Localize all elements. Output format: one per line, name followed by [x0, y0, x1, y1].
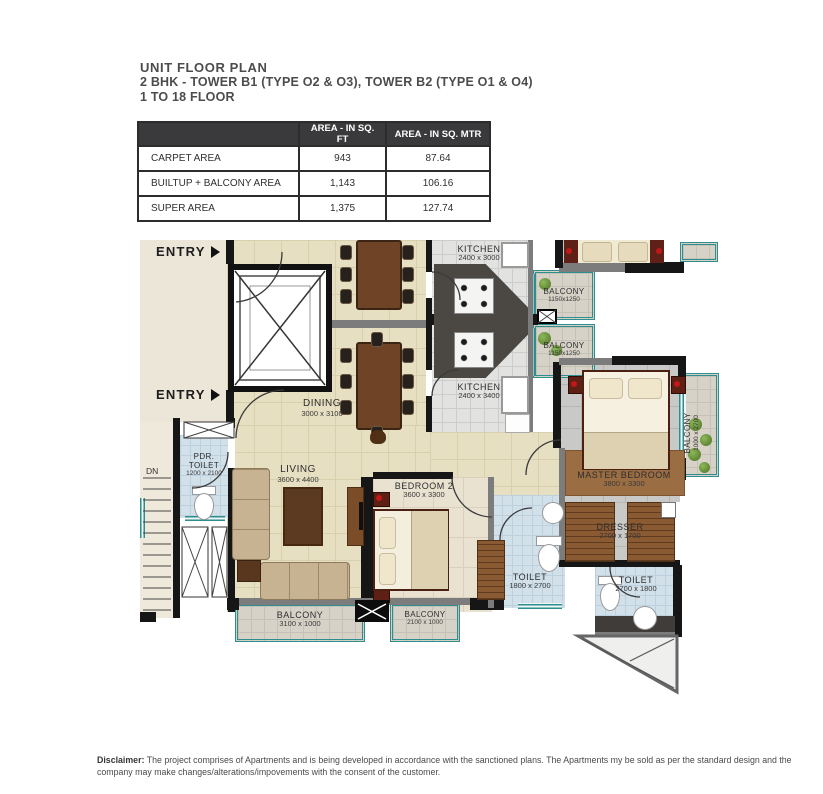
lift-shaft — [228, 264, 332, 392]
dining-table-neighbor — [340, 240, 414, 310]
row-sqft: 1,143 — [299, 171, 386, 196]
room-label-kitchen-top: KITCHEN 2400 x 3000 — [436, 244, 522, 263]
duvet — [411, 511, 448, 589]
decor-icon — [566, 248, 572, 254]
window-stairs — [140, 498, 145, 538]
disclaimer-text: The project comprises of Apartments and … — [97, 755, 792, 777]
room-label-balcony-br: BALCONY 2100 x 1000 — [392, 610, 458, 627]
chair — [402, 245, 414, 260]
wall-corner — [140, 612, 156, 622]
disclaimer: Disclaimer: The project comprises of Apa… — [97, 755, 797, 778]
room-label-balcony-right: BALCONY 1000 x 2700 — [683, 390, 713, 476]
stove-icon — [454, 278, 494, 314]
pillow — [628, 378, 662, 399]
wardrobe — [477, 540, 505, 600]
wall — [555, 240, 563, 268]
sink-icon — [542, 502, 564, 524]
row-label: BUILTUP + BALCONY AREA — [138, 171, 299, 196]
door-gap — [426, 272, 432, 298]
kitchen-appliance — [505, 414, 530, 433]
room-label-living: LIVING 3600 x 4400 — [262, 464, 334, 484]
sofa-section — [260, 562, 350, 600]
entry-label-top: ENTRY — [156, 244, 220, 259]
tv-icon — [359, 502, 363, 530]
chair — [402, 267, 414, 282]
header-sqmtr: AREA - IN SQ. MTR — [386, 122, 490, 146]
row-label: CARPET AREA — [138, 146, 299, 171]
chair — [340, 245, 352, 260]
chair — [371, 332, 383, 347]
duvet — [584, 432, 668, 469]
table-row: BUILTUP + BALCONY AREA 1,143 106.16 — [138, 171, 490, 196]
room-label-kitchen-main: KITCHEN 2400 x 3400 — [436, 382, 522, 401]
row-label: SUPER AREA — [138, 196, 299, 221]
chair — [340, 348, 352, 363]
room-label-balcony-neighbor: BALCONY 1150x1250 — [533, 287, 595, 304]
decor-icon — [656, 248, 662, 254]
room-label-toilet1: TOILET 1800 x 2700 — [496, 572, 564, 591]
wall-neighbor-bed-black — [625, 262, 684, 273]
room-label-toilet2: TOILET 2700 x 1800 — [598, 575, 674, 594]
chair — [402, 289, 414, 304]
stool — [370, 430, 386, 444]
floor-range: 1 TO 18 FLOOR — [140, 90, 533, 105]
wall-bedroom2-top — [373, 472, 453, 479]
chair — [340, 289, 352, 304]
pillow — [618, 242, 648, 262]
row-sqft: 943 — [299, 146, 386, 171]
row-sqmtr: 127.74 — [386, 196, 490, 221]
chair — [402, 400, 414, 415]
room-label-dining: DINING 3000 x 3100 — [286, 398, 358, 418]
table-top — [356, 342, 402, 430]
side-table — [237, 560, 261, 582]
wall-master-top-black — [612, 356, 686, 365]
chair — [340, 267, 352, 282]
sink-icon — [633, 606, 657, 630]
room-label-pdr-toilet: PDR. TOILET 1200 x 2100 — [178, 452, 230, 478]
stairs-dn-label: DN — [146, 466, 158, 476]
title-block: UNIT FLOOR PLAN 2 BHK - TOWER B1 (TYPE O… — [140, 60, 533, 105]
disclaimer-label: Disclaimer: — [97, 755, 144, 765]
entry-text: ENTRY — [156, 244, 206, 259]
row-sqmtr: 106.16 — [386, 171, 490, 196]
basin — [661, 502, 676, 518]
page-title: UNIT FLOOR PLAN — [140, 60, 533, 75]
neighbor-bed — [564, 240, 664, 263]
row-sqft: 1,375 — [299, 196, 386, 221]
wall-neighbor-bed — [559, 263, 625, 272]
header-sqft: AREA - IN SQ. FT — [299, 122, 386, 146]
room-label-master-bedroom: MASTER BEDROOM 3800 x 3300 — [563, 470, 685, 489]
chair — [402, 374, 414, 389]
stove-icon — [454, 332, 494, 368]
dining-table — [340, 332, 414, 438]
wall-toilet2-bottom — [595, 632, 675, 637]
pillow — [379, 553, 396, 585]
chair — [340, 374, 352, 389]
pillow — [582, 242, 612, 262]
balcony-top-right-partial — [680, 242, 718, 262]
table-header-row: AREA - IN SQ. FT AREA - IN SQ. MTR — [138, 122, 490, 146]
entry-arrow-icon — [211, 246, 220, 258]
pillow — [379, 517, 396, 549]
master-bed — [568, 370, 684, 470]
decor-icon — [674, 381, 680, 387]
room-label-balcony-bl: BALCONY 3100 x 1000 — [237, 610, 363, 629]
row-sqmtr: 87.64 — [386, 146, 490, 171]
entry-label-bottom: ENTRY — [156, 387, 220, 402]
window-toilet1 — [518, 603, 562, 609]
wall — [226, 240, 234, 264]
floor-plan: ENTRY ENTRY DN KITCHEN 2400 x 3000 BALCO… — [140, 240, 740, 695]
chair — [402, 348, 414, 363]
corner-shaft-triangle — [578, 636, 677, 692]
floor-plan-page: UNIT FLOOR PLAN 2 BHK - TOWER B1 (TYPE O… — [0, 0, 823, 794]
page-subtitle: 2 BHK - TOWER B1 (TYPE O2 & O3), TOWER B… — [140, 75, 533, 90]
table-row: CARPET AREA 943 87.64 — [138, 146, 490, 171]
wall-master-left — [553, 362, 561, 448]
room-label-balcony-kitchen: BALCONY 1150x1250 — [533, 341, 595, 358]
wall-stairs — [173, 418, 180, 618]
bedroom2-bed — [373, 505, 449, 595]
living-rug — [283, 487, 323, 546]
door-gap — [426, 370, 432, 396]
table-row: SUPER AREA 1,375 127.74 — [138, 196, 490, 221]
pillow — [589, 378, 623, 399]
entry-text: ENTRY — [156, 387, 206, 402]
header-empty-cell — [138, 122, 299, 146]
wall-kitchen-left — [426, 240, 432, 432]
area-table: AREA - IN SQ. FT AREA - IN SQ. MTR CARPE… — [137, 121, 491, 222]
entry-arrow-icon — [211, 389, 220, 401]
room-label-bedroom2: BEDROOM 2 3600 x 3300 — [375, 481, 473, 500]
table-top — [356, 240, 402, 310]
wall — [227, 598, 239, 610]
room-label-dresser: DRESSER 2700 x 1700 — [568, 522, 672, 541]
decor-icon — [571, 381, 577, 387]
